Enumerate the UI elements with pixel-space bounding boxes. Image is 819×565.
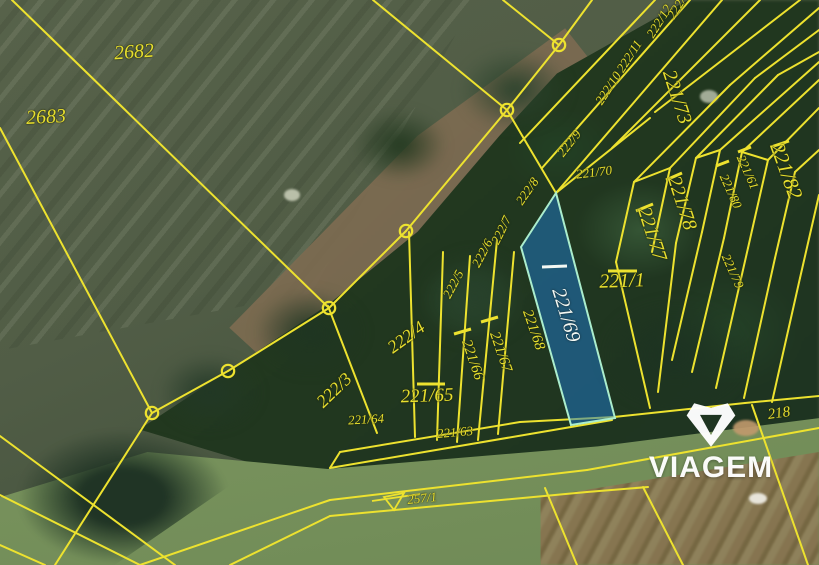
parcel-label-221-68: 221/68	[519, 308, 547, 352]
parcel-label-2682: 2682	[113, 41, 154, 64]
parcel-label-221-70: 221/70	[575, 163, 612, 180]
parcel-label-221-67: 221/67	[486, 330, 514, 374]
parcel-label-222-11: 222/11	[614, 38, 644, 75]
viagem-wordmark: VIAGEM	[641, 451, 781, 485]
parcel-label-221-79: 221/79	[720, 252, 747, 290]
parcel-label-221-82: 221/82	[766, 140, 806, 202]
parcel-label-221-64: 221/64	[348, 412, 385, 427]
parcel-label-221-65: 221/65	[400, 386, 453, 407]
parcel-label-222-3: 222/3	[313, 369, 355, 410]
parcel-label-257-1: 257/1	[407, 490, 438, 506]
parcel-label-221-77: 221/77	[634, 204, 670, 263]
viagem-gem-icon	[682, 398, 740, 448]
parcel-label-2683: 2683	[26, 106, 67, 128]
parcel-label-221-1: 221/1	[599, 270, 645, 292]
parcel-label-221-66: 221/66	[458, 338, 486, 382]
parcel-label-222-9: 222/9	[555, 127, 583, 158]
cadastral-map-view: 26822683222/3222/4221/64221/65221/63222/…	[0, 0, 819, 565]
viagem-watermark: VIAGEM	[641, 398, 781, 485]
parcel-label-221-78: 221/78	[664, 173, 700, 232]
parcel-label-221-69: 221/69	[548, 286, 583, 345]
parcel-label-221-80: 221/80	[718, 172, 745, 210]
parcel-label-221-61: 221/61	[735, 153, 762, 191]
parcel-label-222-4: 222/4	[384, 318, 428, 357]
parcel-label-222-8: 222/8	[513, 175, 541, 207]
parcel-label-222-10: 222/10	[593, 69, 624, 106]
parcel-label-221-63: 221/63	[436, 424, 473, 440]
parcel-label-221-73: 221/73	[659, 67, 695, 126]
parcel-label-222-7: 222/7	[489, 214, 514, 246]
parcel-label-222-5: 222/5	[440, 268, 465, 300]
